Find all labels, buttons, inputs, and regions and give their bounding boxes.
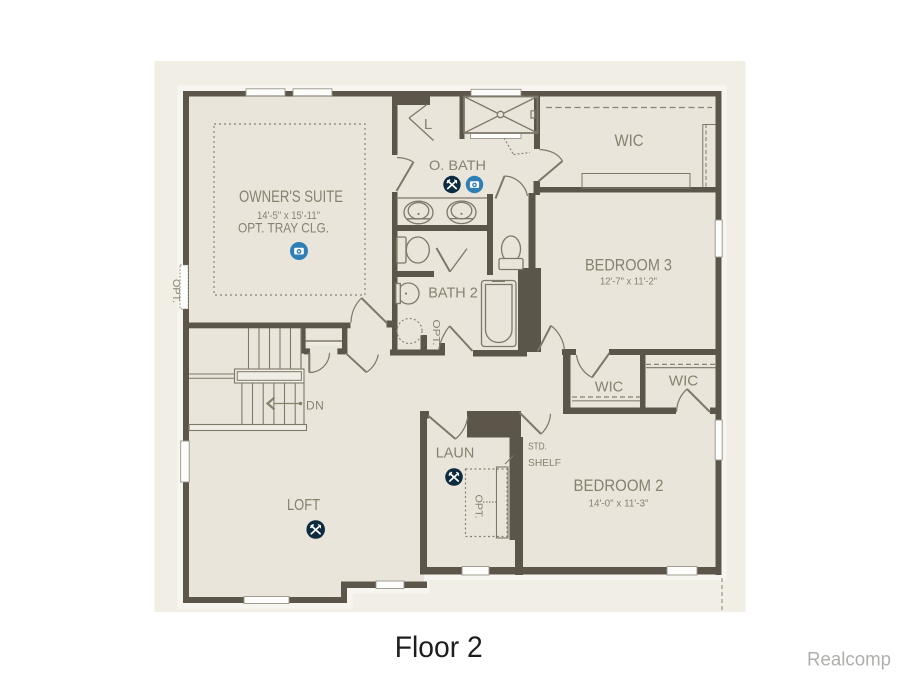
svg-text:BEDROOM 3: BEDROOM 3 [585,257,672,275]
svg-text:OPT.: OPT. [170,279,181,303]
svg-text:14'-0" x 11'-3": 14'-0" x 11'-3" [589,498,649,510]
svg-text:DN: DN [306,399,324,413]
svg-text:BEDROOM 2: BEDROOM 2 [574,477,664,495]
svg-text:OPT. TRAY CLG.: OPT. TRAY CLG. [238,220,329,236]
svg-text:BATH 2: BATH 2 [428,285,478,302]
svg-text:LAUN: LAUN [436,445,475,462]
svg-text:Floor 2: Floor 2 [395,631,483,664]
svg-text:SHELF: SHELF [528,457,561,469]
svg-text:Realcomp: Realcomp [807,650,891,671]
svg-text:12'-7" x 11'-2": 12'-7" x 11'-2" [600,277,657,288]
svg-text:LOFT: LOFT [287,497,320,514]
svg-text:WIC: WIC [595,380,624,396]
svg-text:WIC: WIC [669,374,699,390]
svg-text:STD.: STD. [528,441,547,453]
svg-text:L: L [424,116,432,133]
svg-text:O. BATH: O. BATH [429,157,486,173]
svg-text:OPT.: OPT. [472,495,483,519]
svg-text:OWNER'S SUITE: OWNER'S SUITE [239,188,343,206]
svg-text:OPT.: OPT. [430,320,441,346]
svg-text:WIC: WIC [615,132,644,150]
